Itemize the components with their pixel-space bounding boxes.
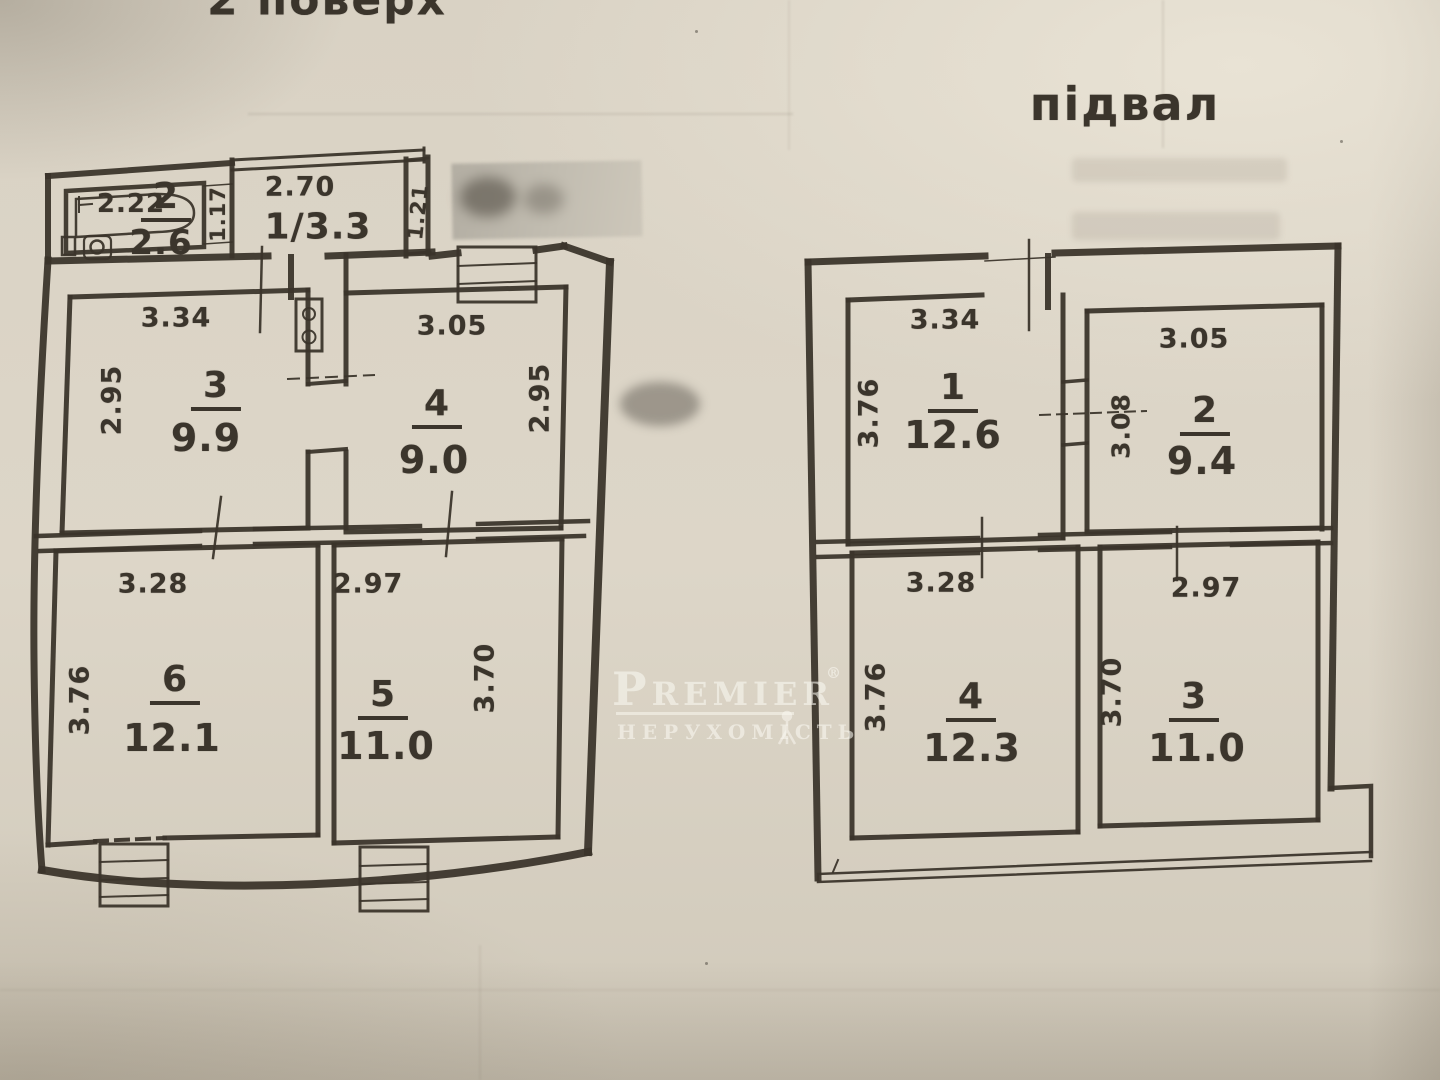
basement-title: підвал [1030, 77, 1221, 131]
window-top [232, 150, 424, 160]
dim-b-room3-width: 2.97 [1171, 573, 1242, 604]
room-area-4: 9.0 [399, 438, 469, 482]
dim-room6-height: 3.76 [65, 665, 96, 736]
room-number-b4: 4 [946, 676, 996, 722]
room-area-b1: 12.6 [904, 413, 1002, 457]
dim-b-room2-height: 3.08 [1107, 393, 1136, 459]
floor2-title: 2 поверх [207, 0, 447, 26]
watermark-brand: Premier [612, 662, 834, 716]
dim-room5-height: 3.70 [470, 643, 501, 714]
room-number-3: 3 [191, 365, 241, 411]
room-area-b4: 12.3 [923, 726, 1021, 770]
room-number-bath: 2 [141, 176, 191, 222]
dim-b-room3-height: 3.70 [1097, 657, 1128, 728]
room-number-b3: 3 [1169, 676, 1219, 722]
room-area-5: 11.0 [337, 724, 435, 768]
dim-b-room4-height: 3.76 [861, 662, 892, 733]
room-area-b2: 9.4 [1167, 439, 1237, 483]
dim-b-room4-width: 3.28 [906, 568, 977, 599]
basement-walls [808, 240, 1371, 882]
floorplan-linework [0, 0, 1440, 1080]
room-number-b2: 2 [1180, 390, 1230, 436]
room-area-bath: 2.6 [129, 223, 192, 263]
room-number-6: 6 [150, 659, 200, 705]
room-number-b1: 1 [928, 367, 978, 413]
watermark-registered-mark: ® [826, 664, 841, 682]
room-area-b3: 11.0 [1148, 726, 1246, 770]
window-hatch [458, 247, 536, 302]
dim-room6-width: 3.28 [118, 569, 189, 600]
door-opening-dash [288, 375, 374, 379]
floor2-walls [34, 148, 610, 911]
watermark-surveyor-icon [772, 710, 802, 746]
dim-room4-width: 3.05 [417, 311, 488, 342]
dim-room3-width: 3.34 [141, 303, 212, 334]
floorplan-photo: 2 поверх підвал 2.22 2 2.6 1.17 2.70 1/3… [0, 0, 1440, 1080]
dim-b-room1-width: 3.34 [910, 305, 981, 336]
watermark-divider [616, 712, 794, 715]
dim-hall-left-height: 1.17 [206, 186, 230, 242]
dim-b-room1-height: 3.76 [854, 378, 885, 449]
watermark-subtitle: нерухомість [617, 720, 860, 744]
room-number-4: 4 [412, 383, 462, 429]
room-area-6: 12.1 [123, 716, 221, 760]
dim-b-room2-width: 3.05 [1159, 324, 1230, 355]
door-swing-line [446, 492, 452, 556]
dim-room4-height: 2.95 [525, 363, 556, 434]
room-number-hall: 1/3.3 [265, 207, 372, 248]
room-number-5: 5 [358, 674, 408, 720]
dim-room5-width: 2.97 [333, 569, 404, 600]
dim-hall-width: 2.70 [265, 172, 336, 203]
room-area-3: 9.9 [171, 416, 241, 460]
dim-room3-height: 2.95 [97, 365, 128, 436]
